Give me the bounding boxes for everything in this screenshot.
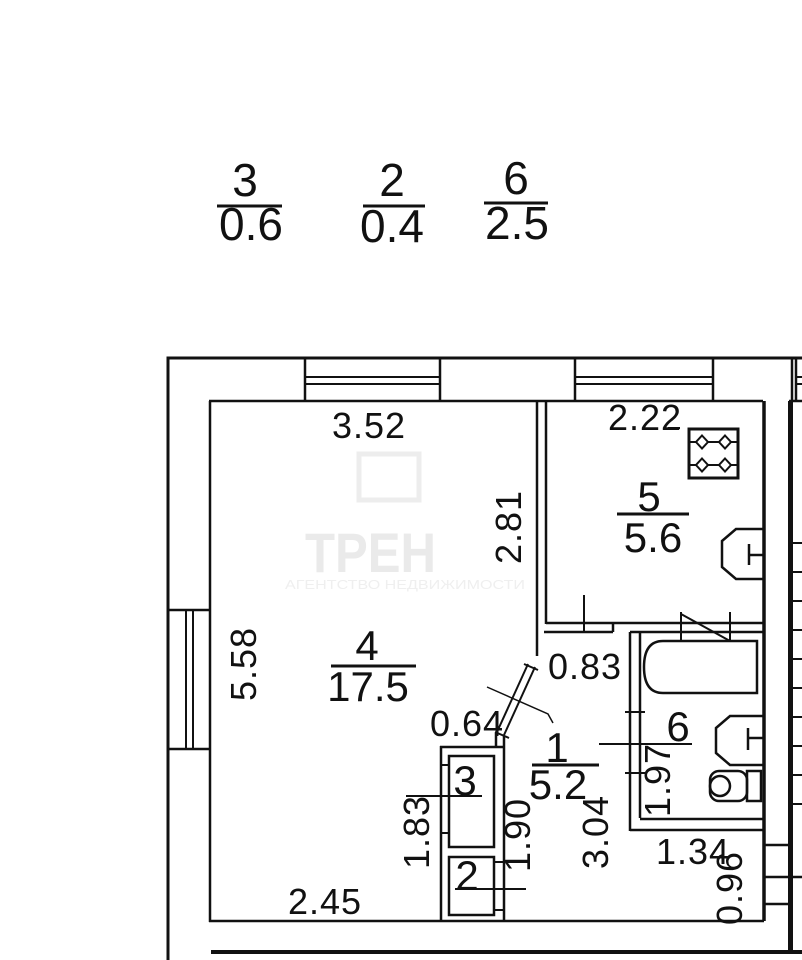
svg-text:6: 6 bbox=[666, 703, 689, 750]
svg-text:0.83: 0.83 bbox=[548, 646, 622, 687]
svg-text:3.04: 3.04 bbox=[575, 795, 616, 869]
svg-text:17.5: 17.5 bbox=[327, 663, 409, 710]
svg-text:1.83: 1.83 bbox=[396, 795, 437, 869]
svg-text:3: 3 bbox=[453, 757, 476, 804]
svg-text:ТРЕН: ТРЕН bbox=[305, 521, 436, 584]
svg-text:2.5: 2.5 bbox=[485, 197, 549, 249]
svg-text:2.45: 2.45 bbox=[288, 881, 362, 922]
svg-text:2.81: 2.81 bbox=[488, 490, 529, 564]
svg-text:2.22: 2.22 bbox=[608, 397, 682, 438]
svg-text:1.90: 1.90 bbox=[497, 798, 538, 872]
svg-text:5.6: 5.6 bbox=[624, 514, 682, 561]
svg-text:0.64: 0.64 bbox=[430, 703, 504, 744]
svg-text:3.52: 3.52 bbox=[332, 405, 406, 446]
svg-text:2: 2 bbox=[455, 852, 478, 899]
svg-text:0.6: 0.6 bbox=[219, 198, 283, 250]
svg-text:2: 2 bbox=[379, 154, 405, 206]
svg-text:1.97: 1.97 bbox=[637, 743, 678, 817]
svg-text:4: 4 bbox=[355, 622, 378, 669]
svg-text:0.96: 0.96 bbox=[709, 851, 750, 925]
svg-text:0.4: 0.4 bbox=[360, 200, 424, 252]
svg-text:5.58: 5.58 bbox=[223, 627, 264, 701]
svg-text:АГЕНТСТВО НЕДВИЖИМОСТИ: АГЕНТСТВО НЕДВИЖИМОСТИ bbox=[285, 577, 525, 592]
